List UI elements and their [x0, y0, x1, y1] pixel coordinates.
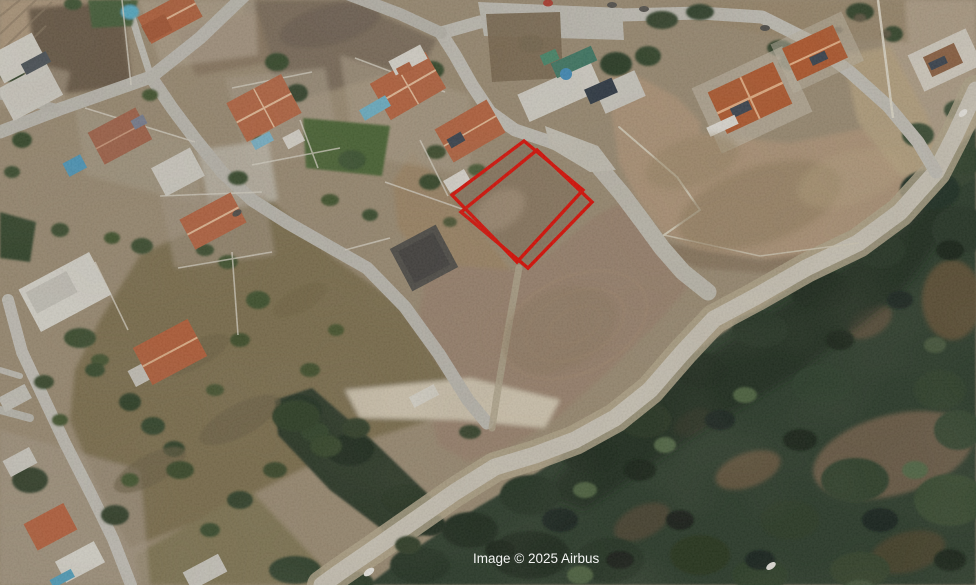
- svg-text:Image © 2025 Airbus: Image © 2025 Airbus: [473, 551, 600, 566]
